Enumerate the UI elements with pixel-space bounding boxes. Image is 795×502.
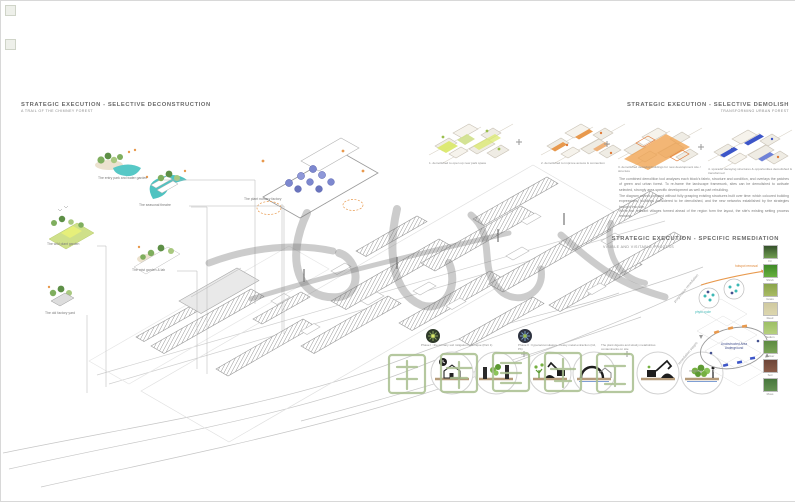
plant-label: Soil (763, 373, 777, 377)
vignette-label: The old factory yard (45, 311, 75, 315)
plant-image (763, 378, 778, 392)
page-subtitle-right: TRANSFORMING URBAN FOREST (601, 109, 789, 113)
process-caption: Phase I : the primary soil mitigation te… (421, 344, 509, 348)
plant-label: Fir (763, 259, 777, 263)
plant-image (763, 340, 778, 354)
process-circle-dome (573, 352, 615, 394)
process-circles (431, 351, 723, 394)
plant-label: Sedum (763, 335, 777, 339)
plant-label: Moss (763, 392, 777, 396)
section-right-header: STRATEGIC EXECUTION - SELECTIVE DEMOLISH… (601, 102, 789, 113)
vignette-entry-park (95, 149, 141, 176)
vignette-label: The seasonal theatre (139, 203, 171, 207)
site-chip-icon-2 (518, 329, 532, 343)
body-paragraph: The diagram cannot proceed without fully… (619, 194, 789, 210)
process-caption: Phase II : hyperaccumulators - heavy met… (518, 344, 598, 352)
site-chip-icon-1 (426, 329, 440, 343)
page-title-right: STRATEGIC EXECUTION - SELECTIVE DEMOLISH (601, 102, 789, 108)
annotation-teal: phyto cycle (695, 310, 711, 314)
mini-diagram-3 (618, 128, 702, 170)
plant-swatch-column: Fir Shrub Grass Reed Sedum Vetiver Soil … (763, 245, 778, 396)
plus-icon (516, 139, 522, 145)
site-axonometric-drawing (1, 1, 795, 501)
axon-building-label: The plant nursery factory (244, 197, 282, 201)
plant-image (763, 264, 778, 278)
plant-label: Grass (763, 297, 777, 301)
page-subtitle-remediation: VISIBLE AND VISITABLE PROCESS (603, 245, 674, 249)
vignette-old-factory (48, 286, 74, 306)
page-title-remediation: STRATEGIC EXECUTION - SPECIFIC REMEDIATI… (601, 236, 779, 242)
mini-diagram-2 (541, 124, 625, 163)
vignette-label: The entry park and water garden (98, 176, 147, 180)
plant-image (763, 321, 778, 335)
body-paragraph: The combined demolition tool analyses ea… (619, 177, 789, 193)
plant-label: Reed (763, 316, 777, 320)
process-circle-plant-excavator (529, 352, 571, 394)
demolition-step-caption: 3. demolished decaying buildings for new… (618, 165, 704, 173)
section-remediation-header: STRATEGIC EXECUTION - SPECIFIC REMEDIATI… (601, 236, 779, 242)
body-paragraph: While the relevant villages formed ahead… (619, 209, 789, 220)
demolition-step-caption: 4. sporadic decaying structures & opport… (708, 167, 792, 175)
presentation-board: STRATEGIC EXECUTION - SELECTIVE DECONSTR… (0, 0, 795, 502)
section-left-header: STRATEGIC EXECUTION - SELECTIVE DECONSTR… (21, 102, 211, 113)
plant-image (763, 302, 778, 316)
annotation-orange: hotspot removal (735, 264, 758, 268)
page-subtitle-left: A TRAIL OF THE CHIMNEY FOREST (21, 109, 211, 113)
mini-diagram-1 (429, 124, 513, 163)
page-title-left: STRATEGIC EXECUTION - SELECTIVE DECONSTR… (21, 102, 211, 108)
plant-label: Vetiver (763, 354, 777, 358)
vignette-label: The mist garden & lab (132, 268, 165, 272)
vignette-label: The wild plant garden (47, 242, 79, 246)
plant-image (763, 283, 778, 297)
process-circle-excavator-dig (637, 352, 679, 394)
mini-diagram-4 (708, 130, 792, 169)
demolition-step-caption: 2. demolished to improve access & connec… (541, 161, 627, 165)
plus-icon (698, 144, 704, 150)
mapping-label: mapping (689, 369, 702, 373)
loop-center-label: Unobstructed Area Underground (709, 342, 759, 350)
vignette-theatre (146, 170, 187, 199)
process-caption: The plant digests and slowly metabolizes… (601, 344, 673, 352)
process-circle-house-clock (431, 352, 473, 394)
demolition-step-caption: 1. demolished to open up new park space (429, 161, 515, 165)
plant-label: Shrub (763, 278, 777, 282)
loop-center-label-bottom: Underground (709, 346, 759, 350)
plant-image (763, 359, 778, 373)
plant-image (763, 245, 778, 259)
